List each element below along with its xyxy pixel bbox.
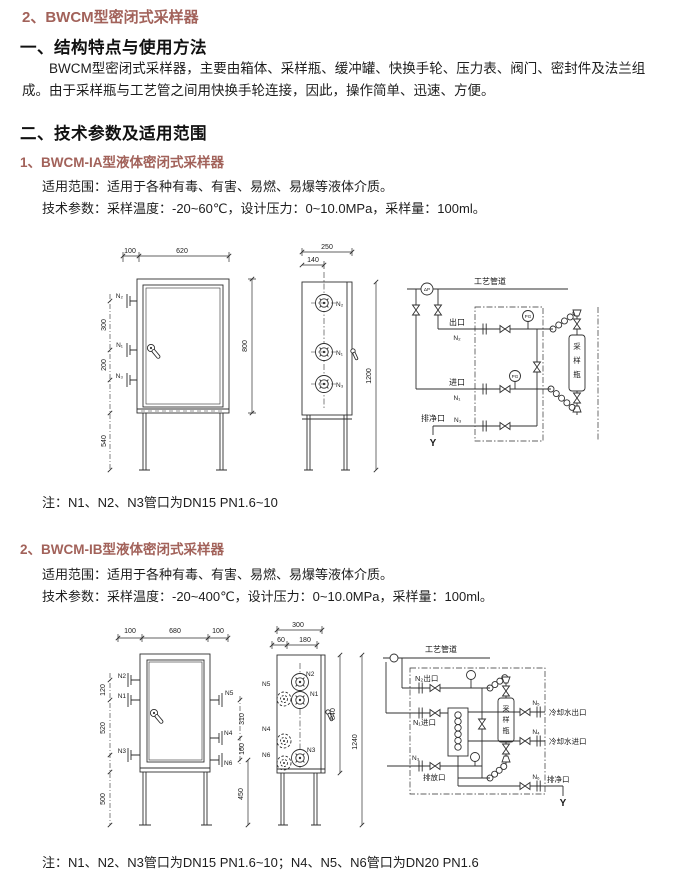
dim-label: 140: [307, 257, 319, 264]
valve-icon: [520, 783, 530, 790]
nozzle-label: N1: [310, 691, 319, 698]
section1-heading: 一、结构特点与使用方法: [20, 34, 207, 58]
nozzle-label: N₃: [412, 755, 420, 762]
bottle-label: 瓶: [503, 726, 510, 735]
nozzle-n5: [210, 693, 222, 707]
flange-circle-n6: [277, 756, 291, 770]
pipeline-label: 工艺管道: [425, 644, 457, 654]
drain-y-symbol: Y: [430, 438, 437, 449]
nozzle-label: N₃: [336, 382, 344, 389]
bottle-label: 采: [503, 704, 510, 713]
valve-icon: [500, 326, 510, 333]
dim-label: 800: [242, 340, 249, 352]
nozzle-label: N5: [262, 681, 271, 688]
flange-circle-n4: [277, 734, 291, 748]
dim-label: 300: [101, 319, 108, 331]
bottle-label: 样: [573, 355, 581, 365]
nozzle-label: N₁: [116, 342, 124, 349]
sample-bottle-assembly: [486, 673, 514, 782]
page-title: 2、BWCM型密闭式采样器: [22, 6, 199, 27]
nozzle-label: N1: [118, 693, 127, 700]
bottle-label: 采: [573, 341, 581, 351]
inlet-nozzle: N₁: [454, 395, 462, 402]
nozzle-label: N₃: [116, 373, 124, 380]
model-a-scope: 适用范围：适用于各种有毒、有害、易燃、易爆等液体介质。: [42, 176, 393, 195]
inlet-label: 进口: [449, 378, 465, 387]
front-view-a: [108, 252, 256, 472]
valve-icon: [500, 423, 510, 430]
model-a-params: 技术参数：采样温度：-20~60℃，设计压力：0~10.0MPa，采样量：100…: [42, 198, 486, 217]
nozzle-label: N6: [224, 760, 233, 767]
nozzle-label: N₁: [336, 350, 344, 357]
dim-label: 200: [101, 359, 108, 371]
door-handle-icon: [150, 709, 163, 724]
flange-circle-n1: [291, 691, 309, 709]
figure-a-labels: 100 620 300 200 540 800 N₂ N₁ N₃ 250 140…: [101, 244, 581, 449]
valve-icon: [430, 710, 440, 717]
dim-label: 60: [277, 637, 285, 644]
dim-label: 120: [100, 684, 107, 696]
nozzle-n3: [128, 748, 140, 762]
dim-label: 100: [212, 628, 224, 635]
pressure-gauge-icon: [471, 753, 480, 762]
valve-icon: [520, 738, 530, 745]
model-b-heading: 2、BWCM-IB型液体密闭式采样器: [20, 538, 224, 558]
nozzle-label: N₆: [532, 774, 540, 781]
side-view-b: [270, 626, 364, 827]
cooler-exchanger: [448, 708, 468, 756]
bottle-label: 样: [503, 715, 510, 724]
valve-icon: [479, 719, 486, 729]
flange-circle-n5: [277, 692, 291, 706]
discharge-label: 排放口: [423, 772, 446, 782]
nozzle-n3: [127, 373, 137, 387]
valve-icon: [500, 386, 510, 393]
dim-label: 310: [239, 713, 246, 725]
document-page: 2、BWCM型密闭式采样器 一、结构特点与使用方法 BWCM型密闭式采样器，主要…: [0, 0, 681, 883]
nozzle-label: N4: [224, 730, 233, 737]
dim-label: 1240: [352, 734, 359, 750]
valve-icon: [520, 709, 530, 716]
side-view-a: [300, 248, 378, 472]
valve-icon: [430, 763, 440, 770]
dim-label: 180: [299, 637, 311, 644]
nozzle-label: N4: [262, 726, 271, 733]
dim-label: 300: [292, 622, 304, 629]
drain-nozzle: N₃: [454, 417, 462, 424]
pipeline-label: 工艺管道: [474, 276, 506, 286]
nozzle-label: N2: [118, 673, 127, 680]
model-a-heading: 1、BWCM-IA型液体密闭式采样器: [20, 151, 224, 171]
dim-label: 250: [321, 244, 333, 251]
dp-label: ΔP: [424, 287, 430, 292]
nozzle-n4: [210, 731, 222, 745]
drain-label: 排净口: [421, 413, 445, 423]
dim-label: 1200: [366, 368, 373, 384]
nozzle-label: N₂: [116, 293, 124, 300]
pressure-gauge-icon: [467, 671, 476, 680]
section1-body: BWCM型密闭式采样器，主要由箱体、采样瓶、缓冲罐、快换手轮、压力表、阀门、密封…: [22, 58, 664, 102]
quick-connector-icon: [502, 756, 510, 762]
dim-label: 100: [124, 248, 136, 255]
valve-icon: [534, 362, 541, 372]
coil-hose-icon: [486, 762, 508, 782]
inlet-label: N₁进口: [413, 718, 436, 727]
model-b-params: 技术参数：采样温度：-20~400℃，设计压力：0~10.0MPa，采样量：10…: [42, 586, 493, 605]
instrument-icon: [390, 654, 398, 662]
valve-icon: [435, 305, 442, 315]
valve-icon: [574, 319, 581, 329]
nozzle-label: N₄: [532, 729, 540, 736]
bottle-label: 瓶: [573, 369, 581, 379]
nozzle-label: N₂: [336, 301, 344, 308]
nozzle-label: N5: [225, 690, 234, 697]
nozzle-label: N2: [306, 671, 315, 678]
nozzle-label: N3: [118, 748, 127, 755]
drain-y-symbol: Y: [560, 798, 567, 809]
dim-label: 840: [330, 708, 337, 720]
section2-heading: 二、技术参数及适用范围: [20, 120, 207, 144]
nozzle-n1: [128, 693, 140, 707]
dim-label: 680: [169, 628, 181, 635]
valve-icon: [574, 393, 581, 403]
outlet-label: N₂出口: [415, 673, 438, 683]
nozzle-n1: [127, 343, 137, 357]
valve-icon: [413, 305, 420, 315]
quick-connector-icon: [502, 677, 510, 683]
nozzle-n2: [128, 673, 140, 687]
valve-icon: [503, 744, 510, 754]
cooling-in-label: 冷却水进口: [549, 736, 587, 746]
dim-label: 620: [176, 248, 188, 255]
dim-label: 100: [124, 628, 136, 635]
dim-label: 540: [101, 435, 108, 447]
nozzle-label: N3: [307, 747, 316, 754]
outlet-nozzle: N₂: [453, 335, 461, 342]
pg-label: PG: [525, 314, 532, 319]
note-a: 注：N1、N2、N3管口为DN15 PN1.6~10: [42, 492, 278, 511]
dim-label: 500: [100, 793, 107, 805]
nozzle-label: N₅: [532, 700, 540, 707]
cooling-out-label: 冷却水出口: [549, 707, 587, 717]
outlet-label: 出口: [449, 317, 465, 327]
nozzle-label: N6: [262, 752, 271, 759]
door-handle-icon: [147, 344, 160, 359]
nozzle-n6: [210, 753, 222, 767]
figure-b-drawings: 100 680 100 120 520 500 310 160 450 N2 N…: [85, 618, 681, 850]
note-b: 注：N1、N2、N3管口为DN15 PN1.6~10；N4、N5、N6管口为DN…: [42, 852, 479, 871]
valve-icon: [430, 685, 440, 692]
drain-label: 排净口: [547, 774, 570, 784]
model-b-scope: 适用范围：适用于各种有毒、有害、易燃、易爆等液体介质。: [42, 564, 393, 583]
valve-icon: [503, 686, 510, 696]
pg-label: PG: [512, 374, 519, 379]
figure-a-drawings: 100 620 300 200 540 800 N₂ N₁ N₃ 250 140…: [85, 238, 675, 490]
nozzle-n2: [127, 294, 137, 308]
dim-label: 160: [239, 743, 246, 755]
cabinet-door: [143, 285, 223, 407]
dim-label: 450: [238, 788, 245, 800]
dim-label: 520: [100, 722, 107, 734]
